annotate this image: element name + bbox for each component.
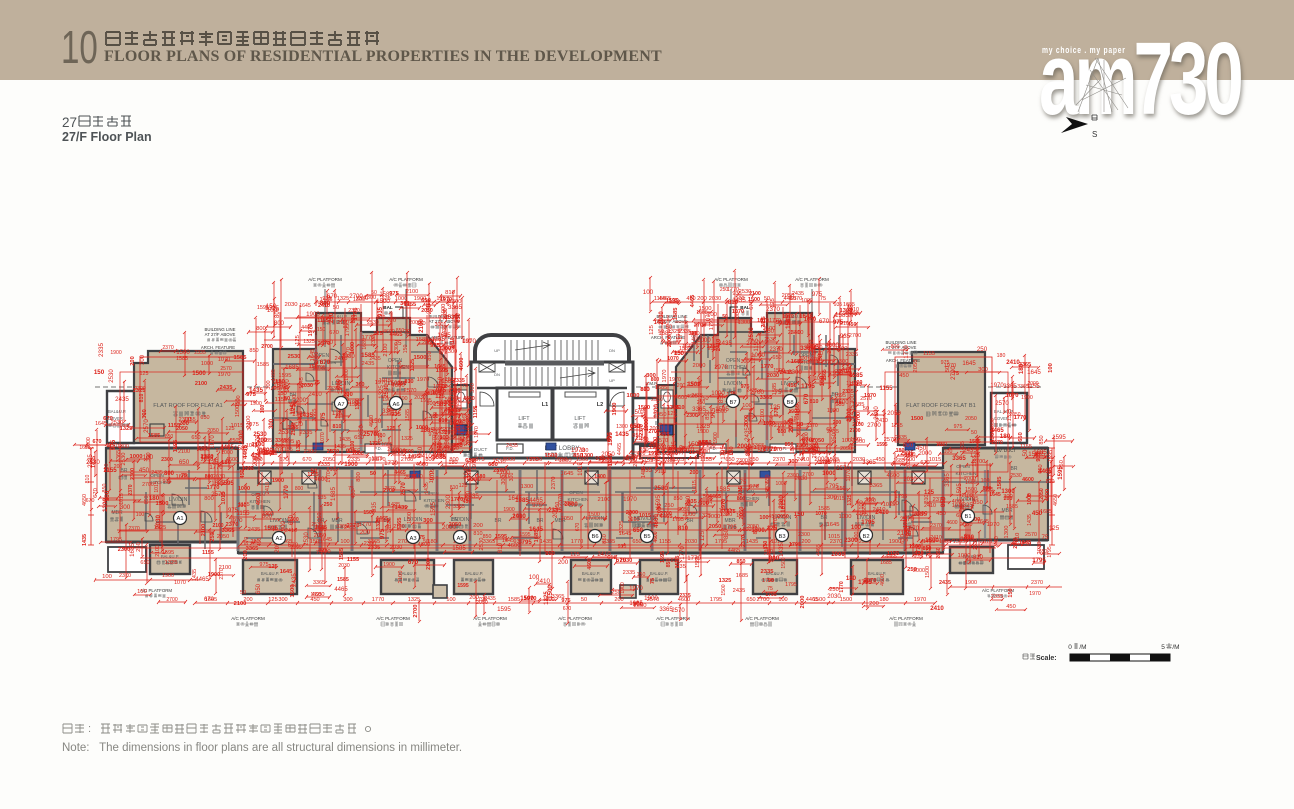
svg-text:1500: 1500 xyxy=(840,597,852,603)
svg-text:2335: 2335 xyxy=(761,569,775,575)
svg-text:2030: 2030 xyxy=(677,448,690,454)
svg-text:1645: 1645 xyxy=(315,525,327,531)
svg-text:1900: 1900 xyxy=(250,401,262,407)
svg-text:1000: 1000 xyxy=(433,384,445,390)
svg-text:1970: 1970 xyxy=(714,364,728,371)
svg-text:1435: 1435 xyxy=(817,459,831,466)
svg-text:100: 100 xyxy=(136,512,145,518)
svg-text:1970: 1970 xyxy=(914,597,926,603)
svg-text:S: S xyxy=(1092,130,1097,139)
svg-text:1900: 1900 xyxy=(162,573,174,579)
svg-text:670: 670 xyxy=(93,488,99,498)
svg-text:2410: 2410 xyxy=(318,303,330,309)
svg-text:2030: 2030 xyxy=(301,383,313,389)
svg-text:L1: L1 xyxy=(542,402,548,408)
svg-text:1015: 1015 xyxy=(692,480,698,492)
svg-text:975: 975 xyxy=(833,319,844,326)
svg-text:850: 850 xyxy=(545,551,555,557)
svg-text:1970: 1970 xyxy=(417,377,430,383)
svg-text:50: 50 xyxy=(240,590,246,596)
svg-text:450: 450 xyxy=(139,467,150,474)
svg-text:2300: 2300 xyxy=(445,495,452,510)
svg-text:250: 250 xyxy=(210,532,216,541)
svg-text:A/C PLATFORM: A/C PLATFORM xyxy=(656,616,690,621)
svg-text:1595: 1595 xyxy=(497,606,511,613)
svg-text:UP: UP xyxy=(609,378,615,383)
svg-text:1795: 1795 xyxy=(861,519,875,526)
svg-text:850: 850 xyxy=(778,429,787,435)
svg-text:1155: 1155 xyxy=(1026,383,1040,390)
svg-text:100: 100 xyxy=(742,403,753,409)
svg-text:1015: 1015 xyxy=(577,462,584,476)
svg-text:1325: 1325 xyxy=(408,597,420,603)
svg-text:1900: 1900 xyxy=(644,595,658,602)
svg-text:2100: 2100 xyxy=(852,422,863,428)
svg-text:1155: 1155 xyxy=(202,550,214,556)
svg-text:27: 27 xyxy=(62,115,77,130)
svg-text:A2: A2 xyxy=(275,536,282,542)
svg-text:DN: DN xyxy=(609,348,615,353)
svg-text:850: 850 xyxy=(165,434,174,440)
svg-text:1595: 1595 xyxy=(457,583,468,589)
svg-text:LIFT: LIFT xyxy=(518,416,530,422)
svg-text:200: 200 xyxy=(469,595,479,601)
svg-text:1325: 1325 xyxy=(401,436,413,442)
svg-text:2050: 2050 xyxy=(709,524,722,530)
svg-text:2050: 2050 xyxy=(887,410,901,417)
svg-text:1645: 1645 xyxy=(719,450,733,457)
svg-text:1685: 1685 xyxy=(880,560,892,566)
svg-text:B5: B5 xyxy=(643,534,650,540)
svg-text:AT 27/F ABOVE: AT 27/F ABOVE xyxy=(205,332,236,337)
svg-text:2030: 2030 xyxy=(709,296,721,302)
svg-text:2435: 2435 xyxy=(291,573,298,587)
svg-text:810: 810 xyxy=(85,475,91,484)
svg-text:B3: B3 xyxy=(778,534,785,540)
svg-text:1900: 1900 xyxy=(344,369,350,381)
svg-text:1155: 1155 xyxy=(238,502,249,508)
svg-text:250: 250 xyxy=(230,438,239,444)
svg-text:810: 810 xyxy=(473,531,482,537)
svg-text:1435: 1435 xyxy=(91,456,97,468)
svg-text:2300: 2300 xyxy=(874,406,880,420)
svg-text:1595: 1595 xyxy=(290,545,302,551)
svg-text:2370: 2370 xyxy=(162,345,173,351)
svg-text:250: 250 xyxy=(327,449,336,455)
svg-text:935: 935 xyxy=(913,554,922,560)
svg-text:2100: 2100 xyxy=(155,545,161,557)
svg-text:650: 650 xyxy=(462,339,471,345)
svg-text:2030: 2030 xyxy=(906,457,912,468)
svg-text:1900: 1900 xyxy=(344,461,358,468)
svg-text:1500: 1500 xyxy=(721,584,727,595)
svg-text:4600: 4600 xyxy=(1022,477,1034,483)
svg-text:1970: 1970 xyxy=(525,457,539,463)
svg-text:1645: 1645 xyxy=(682,344,693,350)
svg-text:1155: 1155 xyxy=(275,397,288,403)
svg-text:4600: 4600 xyxy=(256,493,262,505)
svg-text:4465: 4465 xyxy=(690,295,696,308)
svg-text:2050: 2050 xyxy=(913,359,919,373)
svg-text:2530: 2530 xyxy=(288,354,301,360)
svg-text:2100: 2100 xyxy=(178,449,190,455)
svg-text:1000: 1000 xyxy=(827,408,839,414)
svg-text:4465: 4465 xyxy=(432,427,444,433)
svg-text:800: 800 xyxy=(641,387,650,393)
svg-text:2300: 2300 xyxy=(798,532,810,538)
svg-text:150: 150 xyxy=(744,449,753,455)
svg-text:1325: 1325 xyxy=(303,339,315,345)
svg-text:200: 200 xyxy=(614,597,623,603)
svg-text:1435: 1435 xyxy=(654,320,666,326)
svg-text:1435: 1435 xyxy=(746,539,758,545)
svg-text:1585: 1585 xyxy=(242,466,253,472)
svg-text:2410: 2410 xyxy=(746,340,760,347)
svg-text:800: 800 xyxy=(274,321,285,327)
svg-text:1300: 1300 xyxy=(521,484,534,490)
svg-text:450: 450 xyxy=(1006,604,1016,610)
svg-text:2030: 2030 xyxy=(827,593,841,600)
svg-text:1585: 1585 xyxy=(1006,504,1018,510)
svg-text:75: 75 xyxy=(775,389,782,396)
svg-text:100: 100 xyxy=(1048,363,1054,373)
svg-text:2700: 2700 xyxy=(142,482,154,488)
svg-text:1435: 1435 xyxy=(82,534,88,546)
svg-text:1795: 1795 xyxy=(895,494,908,500)
svg-text:2570: 2570 xyxy=(671,608,685,614)
svg-text:1015: 1015 xyxy=(639,513,651,519)
svg-text:200: 200 xyxy=(563,501,574,507)
svg-text:2030: 2030 xyxy=(767,373,779,379)
svg-text:150: 150 xyxy=(794,511,805,518)
svg-text:2370: 2370 xyxy=(347,523,360,529)
svg-text:1900: 1900 xyxy=(292,395,298,408)
svg-text:1595: 1595 xyxy=(1052,434,1066,441)
svg-text:3365: 3365 xyxy=(944,473,951,487)
svg-text:2435: 2435 xyxy=(115,396,129,403)
svg-text:2335: 2335 xyxy=(603,539,615,545)
svg-text:BAL&U.P.: BAL&U.P. xyxy=(650,571,668,576)
svg-text:2530: 2530 xyxy=(444,315,458,321)
svg-text:1000: 1000 xyxy=(711,390,725,397)
svg-text:1685: 1685 xyxy=(736,573,748,579)
svg-text:50: 50 xyxy=(1022,449,1029,456)
svg-text:1770: 1770 xyxy=(372,597,384,603)
svg-text:BAL&U.P.: BAL&U.P. xyxy=(108,409,126,414)
svg-text:1325: 1325 xyxy=(265,305,280,312)
svg-text:150: 150 xyxy=(309,364,318,370)
svg-text:670: 670 xyxy=(204,597,215,603)
svg-text:1300: 1300 xyxy=(1004,525,1010,539)
svg-text:A/C PLATFORM: A/C PLATFORM xyxy=(558,616,592,621)
svg-text:1070: 1070 xyxy=(732,309,744,315)
svg-text:1970: 1970 xyxy=(230,518,243,524)
svg-text:1000: 1000 xyxy=(238,486,250,492)
svg-text:2100: 2100 xyxy=(234,601,247,607)
svg-text:1070: 1070 xyxy=(815,511,826,517)
svg-text:2100: 2100 xyxy=(337,320,349,326)
svg-text:1900: 1900 xyxy=(788,409,799,415)
svg-text:1595: 1595 xyxy=(264,525,279,532)
svg-text:250: 250 xyxy=(697,400,706,406)
svg-text:975: 975 xyxy=(249,422,259,428)
svg-text:2435: 2435 xyxy=(718,340,733,347)
svg-text:4465: 4465 xyxy=(389,332,403,338)
svg-text:1000: 1000 xyxy=(801,298,813,304)
svg-text:1325: 1325 xyxy=(164,560,178,566)
svg-text:2530: 2530 xyxy=(749,327,755,341)
svg-text:300: 300 xyxy=(688,331,697,337)
svg-text:450: 450 xyxy=(936,511,947,517)
svg-text:1000: 1000 xyxy=(627,393,640,399)
svg-text:1595: 1595 xyxy=(430,502,437,517)
svg-text:935: 935 xyxy=(378,306,384,317)
svg-text:1015: 1015 xyxy=(929,457,941,463)
svg-text:2435: 2435 xyxy=(151,470,163,476)
svg-text:975: 975 xyxy=(812,291,823,298)
svg-text:2030: 2030 xyxy=(284,302,298,308)
svg-text:300: 300 xyxy=(788,459,798,465)
svg-text:450: 450 xyxy=(377,433,386,439)
svg-text:1070: 1070 xyxy=(218,357,230,363)
svg-text:1000: 1000 xyxy=(775,481,786,487)
svg-text:1770: 1770 xyxy=(839,581,845,592)
svg-text:1900: 1900 xyxy=(965,580,977,586)
svg-text:A5: A5 xyxy=(456,536,463,542)
svg-text:50: 50 xyxy=(687,500,693,506)
svg-text:1685: 1685 xyxy=(515,497,529,504)
svg-text:1970: 1970 xyxy=(990,383,1004,389)
svg-text:150: 150 xyxy=(235,399,241,408)
svg-text:2435: 2435 xyxy=(733,588,746,594)
svg-text:BAL&U.P.: BAL&U.P. xyxy=(261,571,279,576)
svg-text:1900: 1900 xyxy=(644,419,650,431)
svg-text:1070: 1070 xyxy=(1006,393,1019,399)
svg-text:2700: 2700 xyxy=(694,322,707,328)
svg-text:75: 75 xyxy=(314,380,320,386)
svg-text:2700: 2700 xyxy=(849,333,861,339)
svg-text:1500: 1500 xyxy=(812,597,826,603)
svg-text:BAL: BAL xyxy=(383,305,393,310)
svg-text:935: 935 xyxy=(642,467,653,474)
svg-text:200: 200 xyxy=(558,559,569,566)
svg-text:125: 125 xyxy=(649,324,655,335)
svg-text:2335: 2335 xyxy=(194,350,206,356)
svg-text:A/C PLATFORM: A/C PLATFORM xyxy=(889,616,923,621)
svg-text:1770: 1770 xyxy=(761,364,774,370)
svg-text:1585: 1585 xyxy=(234,355,248,361)
svg-text:1000: 1000 xyxy=(201,361,213,367)
svg-text:2700: 2700 xyxy=(867,422,881,429)
svg-text:650: 650 xyxy=(632,539,641,545)
svg-text:/M: /M xyxy=(1079,644,1086,651)
svg-text:1015: 1015 xyxy=(903,516,909,528)
svg-text:4465: 4465 xyxy=(334,587,348,593)
svg-text:BR: BR xyxy=(495,518,502,524)
svg-text:975: 975 xyxy=(710,407,717,418)
svg-text:2700: 2700 xyxy=(413,604,419,618)
svg-text:650: 650 xyxy=(140,560,149,566)
svg-text:LIV/DIN: LIV/DIN xyxy=(169,497,188,503)
svg-text:1325: 1325 xyxy=(337,296,349,302)
svg-text:3365: 3365 xyxy=(312,409,318,422)
svg-text:850: 850 xyxy=(666,559,672,568)
svg-text:1685: 1685 xyxy=(791,359,803,365)
svg-text:180: 180 xyxy=(580,448,589,454)
svg-text:180: 180 xyxy=(477,474,486,480)
svg-text::: : xyxy=(88,723,91,735)
svg-text:1770: 1770 xyxy=(626,454,640,461)
svg-text:850: 850 xyxy=(973,500,983,506)
svg-text:250: 250 xyxy=(136,542,142,552)
svg-text:B7: B7 xyxy=(729,400,736,406)
svg-text:2530: 2530 xyxy=(291,423,297,436)
svg-text:4600: 4600 xyxy=(416,462,428,468)
svg-text:1685: 1685 xyxy=(432,454,447,461)
svg-text:B8: B8 xyxy=(786,400,793,406)
svg-text:125: 125 xyxy=(435,394,445,400)
svg-text:1070: 1070 xyxy=(210,435,216,449)
svg-text:1300: 1300 xyxy=(594,474,606,480)
svg-text:1000: 1000 xyxy=(751,352,766,359)
svg-text:2410: 2410 xyxy=(1015,533,1021,546)
svg-text:450: 450 xyxy=(875,457,884,463)
svg-text:1585: 1585 xyxy=(176,356,188,362)
svg-text:1795: 1795 xyxy=(1047,546,1053,557)
svg-text:2435: 2435 xyxy=(939,580,951,586)
svg-text:670: 670 xyxy=(920,460,929,466)
svg-text:2335: 2335 xyxy=(846,352,858,358)
svg-text:100: 100 xyxy=(851,524,862,531)
svg-text:1325: 1325 xyxy=(133,388,147,394)
svg-text:1500: 1500 xyxy=(781,557,787,568)
svg-text:450: 450 xyxy=(899,373,909,379)
svg-text:1500: 1500 xyxy=(588,512,600,518)
svg-text:2030: 2030 xyxy=(663,457,675,463)
svg-text:125: 125 xyxy=(846,362,853,373)
svg-text:1500: 1500 xyxy=(925,566,931,578)
svg-text:250: 250 xyxy=(198,446,209,452)
svg-text:2410: 2410 xyxy=(265,482,271,494)
svg-text:2300: 2300 xyxy=(686,413,698,419)
svg-text:2050: 2050 xyxy=(777,514,788,520)
svg-text:180: 180 xyxy=(427,539,436,545)
svg-text:650: 650 xyxy=(746,597,755,603)
svg-text:150: 150 xyxy=(398,381,407,387)
svg-text:2435: 2435 xyxy=(248,527,261,533)
svg-text:3365: 3365 xyxy=(368,539,380,545)
svg-text:2410: 2410 xyxy=(797,457,809,463)
svg-text:A/C PLATFORM: A/C PLATFORM xyxy=(795,277,829,282)
svg-text:200: 200 xyxy=(690,470,699,476)
svg-text:2530: 2530 xyxy=(492,459,506,465)
svg-text:50: 50 xyxy=(581,597,587,603)
svg-text:2000: 2000 xyxy=(697,338,711,344)
svg-text:75: 75 xyxy=(320,412,327,419)
svg-text:1300: 1300 xyxy=(823,495,837,501)
svg-text:1015: 1015 xyxy=(608,454,614,467)
svg-text:2335: 2335 xyxy=(623,570,636,576)
svg-text:670: 670 xyxy=(803,393,810,404)
svg-text:450: 450 xyxy=(937,442,948,448)
svg-text:1325: 1325 xyxy=(1007,409,1013,422)
svg-text:975: 975 xyxy=(954,424,963,430)
svg-text:2100: 2100 xyxy=(383,343,389,357)
svg-text:2370: 2370 xyxy=(551,477,557,490)
svg-text:650: 650 xyxy=(1018,432,1024,442)
svg-text:4600: 4600 xyxy=(463,396,475,402)
svg-text:100: 100 xyxy=(340,539,349,545)
svg-text:A3: A3 xyxy=(409,536,416,542)
svg-text:2370: 2370 xyxy=(980,539,992,545)
svg-text:1770: 1770 xyxy=(209,465,223,471)
svg-text:50: 50 xyxy=(700,449,706,455)
svg-text:670: 670 xyxy=(774,407,780,416)
svg-text:935: 935 xyxy=(834,302,843,308)
svg-text:150: 150 xyxy=(866,497,875,503)
svg-text:1000: 1000 xyxy=(407,512,413,524)
svg-text:1435: 1435 xyxy=(540,539,552,545)
svg-text:2050: 2050 xyxy=(739,507,745,520)
svg-text:1155: 1155 xyxy=(879,386,893,392)
svg-text:850: 850 xyxy=(674,351,683,357)
svg-text:650: 650 xyxy=(358,424,365,435)
svg-text:670: 670 xyxy=(408,559,419,566)
svg-text:810: 810 xyxy=(326,467,335,473)
svg-text:1585: 1585 xyxy=(452,545,466,552)
svg-text:1015: 1015 xyxy=(781,499,787,513)
svg-text:650: 650 xyxy=(200,415,209,421)
svg-text:1685: 1685 xyxy=(655,385,668,391)
svg-text:50: 50 xyxy=(370,471,376,477)
svg-text:FLAT ROOF FOR FLAT A1: FLAT ROOF FOR FLAT A1 xyxy=(153,403,222,409)
svg-text:A/C PLATFORM: A/C PLATFORM xyxy=(389,277,423,282)
svg-text:2700: 2700 xyxy=(383,488,395,494)
svg-text:1155: 1155 xyxy=(654,296,666,302)
svg-text:810: 810 xyxy=(333,424,342,430)
svg-text:125: 125 xyxy=(387,426,396,432)
svg-text:810: 810 xyxy=(1046,479,1055,485)
svg-text:2050: 2050 xyxy=(421,308,433,314)
svg-text:2410: 2410 xyxy=(1006,359,1020,366)
svg-text:2700: 2700 xyxy=(261,344,273,350)
svg-text:1645: 1645 xyxy=(437,333,451,339)
svg-text:2370: 2370 xyxy=(200,454,214,460)
svg-text:2435: 2435 xyxy=(506,443,518,449)
svg-text:180: 180 xyxy=(846,575,857,582)
svg-text:100: 100 xyxy=(859,500,865,509)
svg-text:2300: 2300 xyxy=(449,299,462,305)
svg-text:1795: 1795 xyxy=(858,579,872,586)
svg-text:1015: 1015 xyxy=(430,469,436,481)
svg-text:1500: 1500 xyxy=(544,453,558,459)
svg-text:4600: 4600 xyxy=(369,415,375,427)
svg-text:FLAT ROOF FOR FLAT B1: FLAT ROOF FOR FLAT B1 xyxy=(906,403,976,409)
svg-text:2570: 2570 xyxy=(220,366,231,372)
svg-text:1770: 1770 xyxy=(359,522,371,528)
svg-text:1300: 1300 xyxy=(117,444,129,450)
svg-text:4465: 4465 xyxy=(728,548,741,554)
svg-text:2300: 2300 xyxy=(303,449,317,455)
svg-text:1015: 1015 xyxy=(231,423,244,429)
svg-text:1585: 1585 xyxy=(257,362,269,368)
svg-text:250: 250 xyxy=(664,503,674,509)
svg-text:670: 670 xyxy=(563,606,572,612)
svg-text:2030: 2030 xyxy=(795,476,808,482)
svg-text:670: 670 xyxy=(909,526,920,532)
svg-text:2570: 2570 xyxy=(404,388,417,394)
svg-text:150: 150 xyxy=(94,369,105,376)
